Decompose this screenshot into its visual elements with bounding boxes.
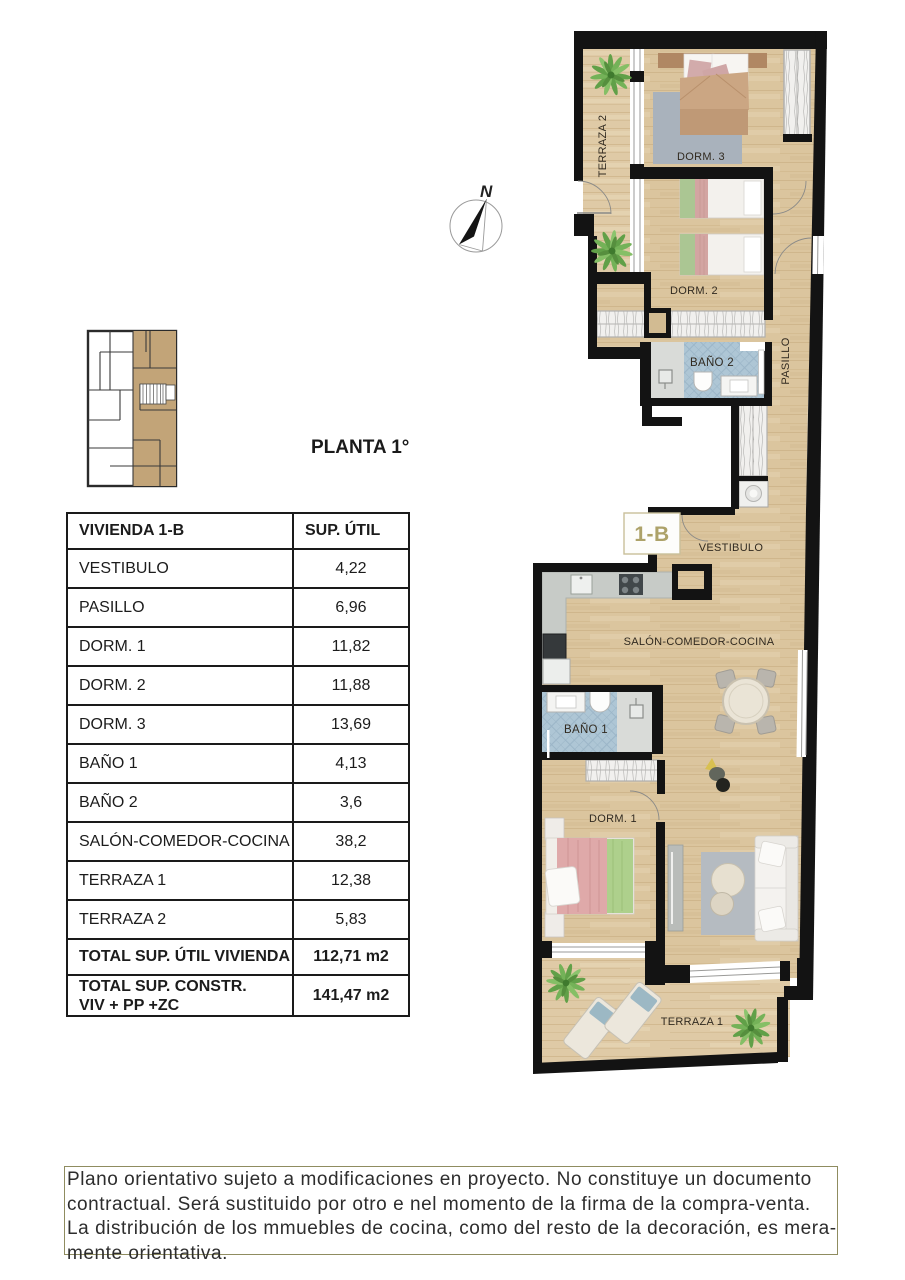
svg-text:DORM. 3: DORM. 3 <box>677 151 725 163</box>
svg-text:SALÓN-COMEDOR-COCINA: SALÓN-COMEDOR-COCINA <box>624 635 775 648</box>
svg-text:1-B: 1-B <box>634 523 669 546</box>
svg-text:N: N <box>480 182 493 201</box>
svg-text:TERRAZA 2: TERRAZA 2 <box>597 115 609 178</box>
svg-text:PASILLO: PASILLO <box>780 337 792 384</box>
svg-text:BAÑO 1: BAÑO 1 <box>564 723 608 736</box>
svg-text:TERRAZA 1: TERRAZA 1 <box>661 1016 724 1028</box>
svg-text:DORM. 2: DORM. 2 <box>670 285 718 297</box>
svg-text:BAÑO 2: BAÑO 2 <box>690 356 734 369</box>
svg-text:DORM. 1: DORM. 1 <box>589 813 637 825</box>
svg-text:VESTIBULO: VESTIBULO <box>699 542 764 554</box>
